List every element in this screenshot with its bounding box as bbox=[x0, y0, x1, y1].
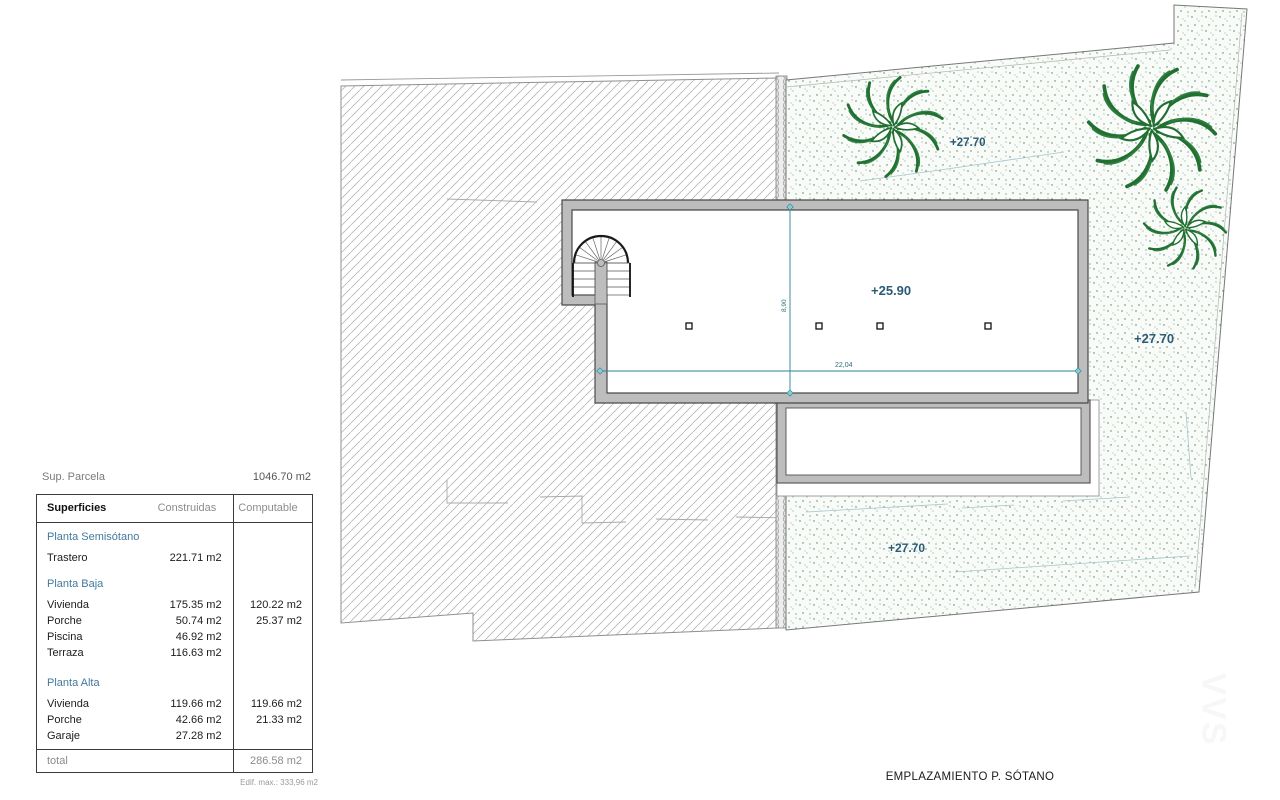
row-label: Piscina bbox=[37, 629, 142, 645]
section-planta-baja: Planta Baja bbox=[37, 575, 312, 593]
table-row: Porche 50.74 m2 25.37 m2 bbox=[37, 613, 312, 629]
row-label: Porche bbox=[37, 613, 142, 629]
row-computable: 21.33 m2 bbox=[232, 712, 312, 728]
elevation-label-garden-top: +27.70 bbox=[950, 137, 986, 149]
row-label: Trastero bbox=[37, 550, 142, 566]
elevation-label-building: +25.90 bbox=[871, 283, 911, 298]
elevation-label-garden-bottom: +27.70 bbox=[888, 541, 925, 555]
edificability-note: Edif. max.: 333,96 m2 bbox=[36, 778, 318, 787]
surfaces-table-header: Superficies Construidas Computable bbox=[37, 495, 312, 523]
row-computable: 119.66 m2 bbox=[232, 696, 312, 712]
row-construida: 50.74 m2 bbox=[142, 613, 221, 629]
elevation-label-garden-right: +27.70 bbox=[1134, 331, 1174, 346]
row-label: Vivienda bbox=[37, 696, 142, 712]
row-label: Garaje bbox=[37, 728, 142, 744]
table-row: Porche 42.66 m2 21.33 m2 bbox=[37, 712, 312, 728]
section-planta-semisotano: Planta Semisótano bbox=[37, 528, 312, 546]
row-computable bbox=[232, 629, 312, 645]
parcel-summary-value: 1046.70 m2 bbox=[253, 471, 313, 483]
row-computable bbox=[232, 728, 312, 744]
section-planta-alta: Planta Alta bbox=[37, 674, 312, 692]
plan-caption: EMPLAZAMIENTO P. SÓTANO bbox=[850, 771, 1090, 783]
row-label: Porche bbox=[37, 712, 142, 728]
row-construida: 175.35 m2 bbox=[142, 597, 221, 613]
row-computable bbox=[232, 645, 312, 661]
lower-annex-interior bbox=[786, 408, 1081, 475]
row-construida: 27.28 m2 bbox=[142, 728, 221, 744]
parcel-summary: Sup. Parcela 1046.70 m2 bbox=[36, 471, 313, 483]
table-row: Piscina 46.92 m2 bbox=[37, 629, 312, 645]
parcel-summary-label: Sup. Parcela bbox=[36, 471, 105, 483]
row-label: Terraza bbox=[37, 645, 142, 661]
total-label: total bbox=[37, 750, 224, 772]
total-row: total 286.58 m2 bbox=[37, 749, 312, 772]
watermark: VVS bbox=[1194, 672, 1233, 746]
table-row: Vivienda 119.66 m2 119.66 m2 bbox=[37, 696, 312, 712]
table-row: Terraza 116.63 m2 bbox=[37, 645, 312, 661]
table-column-divider bbox=[233, 495, 234, 772]
row-construida: 116.63 m2 bbox=[142, 645, 221, 661]
table-row: Vivienda 175.35 m2 120.22 m2 bbox=[37, 597, 312, 613]
header-superficies: Superficies bbox=[37, 495, 143, 522]
row-construida: 221.71 m2 bbox=[142, 550, 221, 566]
surfaces-table: Superficies Construidas Computable Plant… bbox=[36, 494, 313, 773]
header-construidas: Construidas bbox=[143, 495, 216, 522]
dimension-width-label: 22,04 bbox=[835, 362, 853, 369]
dimension-height-label: 8,90 bbox=[781, 299, 788, 312]
total-value: 286.58 m2 bbox=[234, 750, 312, 772]
row-label: Vivienda bbox=[37, 597, 142, 613]
header-computable: Computable bbox=[226, 495, 312, 522]
row-construida: 42.66 m2 bbox=[142, 712, 221, 728]
row-construida: 119.66 m2 bbox=[142, 696, 221, 712]
row-computable: 25.37 m2 bbox=[232, 613, 312, 629]
table-row: Trastero 221.71 m2 bbox=[37, 550, 312, 566]
site-plan-page: 22,04 8,90 +25.90 +27.70 +27.70 +27.70 S… bbox=[0, 0, 1280, 800]
row-construida: 46.92 m2 bbox=[142, 629, 221, 645]
building-interior bbox=[572, 210, 1078, 393]
row-computable: 120.22 m2 bbox=[232, 597, 312, 613]
table-row: Garaje 27.28 m2 bbox=[37, 728, 312, 744]
row-computable bbox=[232, 550, 312, 566]
